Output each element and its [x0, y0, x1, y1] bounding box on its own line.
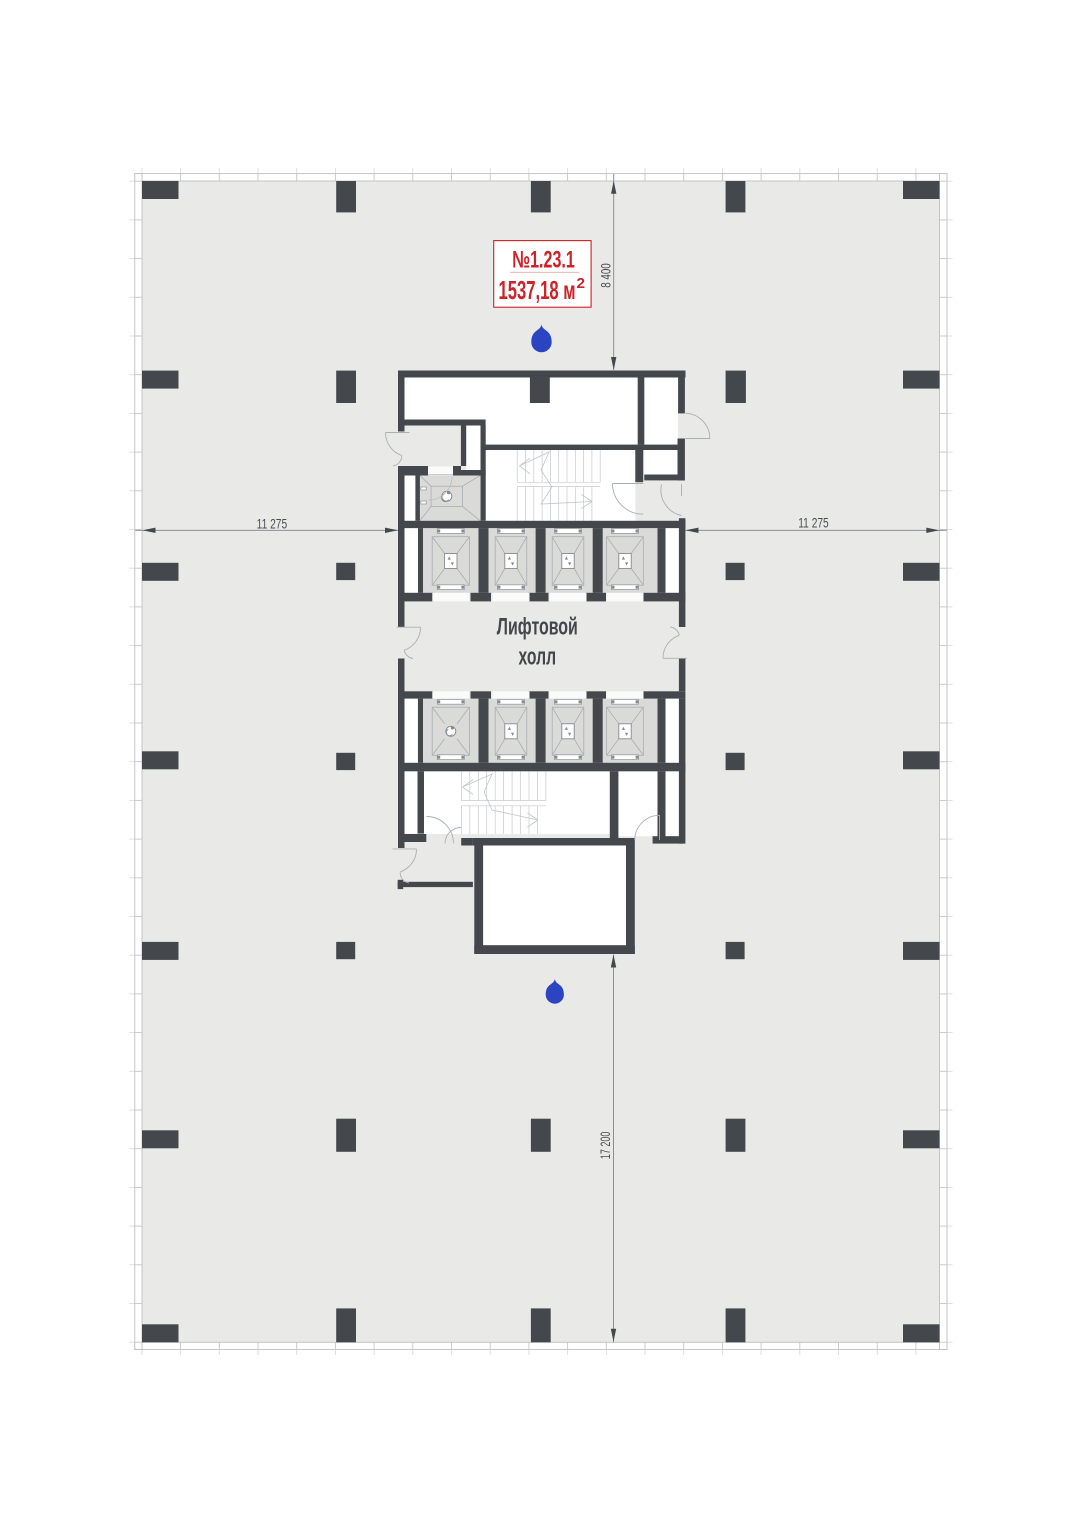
svg-text:2: 2	[577, 276, 586, 292]
svg-text:1537,18 м: 1537,18 м	[499, 275, 576, 305]
svg-text:17 200: 17 200	[598, 1132, 613, 1160]
svg-text:Лифтовой: Лифтовой	[497, 613, 578, 640]
svg-text:11 275: 11 275	[798, 515, 829, 530]
svg-text:№1.23.1: №1.23.1	[512, 247, 575, 274]
svg-text:холл: холл	[519, 644, 557, 671]
svg-text:11 275: 11 275	[257, 516, 288, 531]
svg-text:8 400: 8 400	[598, 263, 613, 288]
